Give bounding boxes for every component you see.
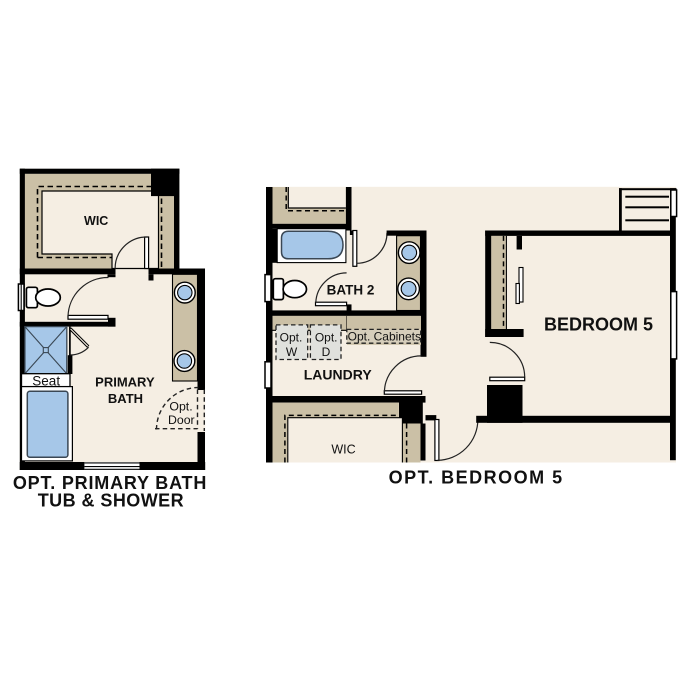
svg-text:TUB & SHOWER: TUB & SHOWER bbox=[38, 491, 184, 511]
svg-text:BEDROOM 5: BEDROOM 5 bbox=[544, 315, 653, 335]
svg-text:Opt. Cabinets: Opt. Cabinets bbox=[348, 329, 421, 343]
svg-text:PRIMARY: PRIMARY bbox=[95, 374, 155, 389]
svg-text:Door: Door bbox=[168, 413, 195, 427]
svg-text:WIC: WIC bbox=[331, 442, 355, 456]
svg-text:D: D bbox=[322, 345, 331, 359]
svg-text:BATH: BATH bbox=[108, 391, 143, 406]
svg-text:W: W bbox=[286, 345, 298, 359]
svg-text:Opt.: Opt. bbox=[315, 331, 338, 345]
svg-text:OPT. BEDROOM 5: OPT. BEDROOM 5 bbox=[389, 468, 564, 488]
svg-text:Opt.: Opt. bbox=[169, 399, 192, 413]
svg-text:BATH 2: BATH 2 bbox=[327, 283, 375, 298]
svg-text:WIC: WIC bbox=[84, 214, 108, 228]
svg-text:Opt.: Opt. bbox=[280, 331, 303, 345]
svg-text:LAUNDRY: LAUNDRY bbox=[304, 367, 373, 383]
